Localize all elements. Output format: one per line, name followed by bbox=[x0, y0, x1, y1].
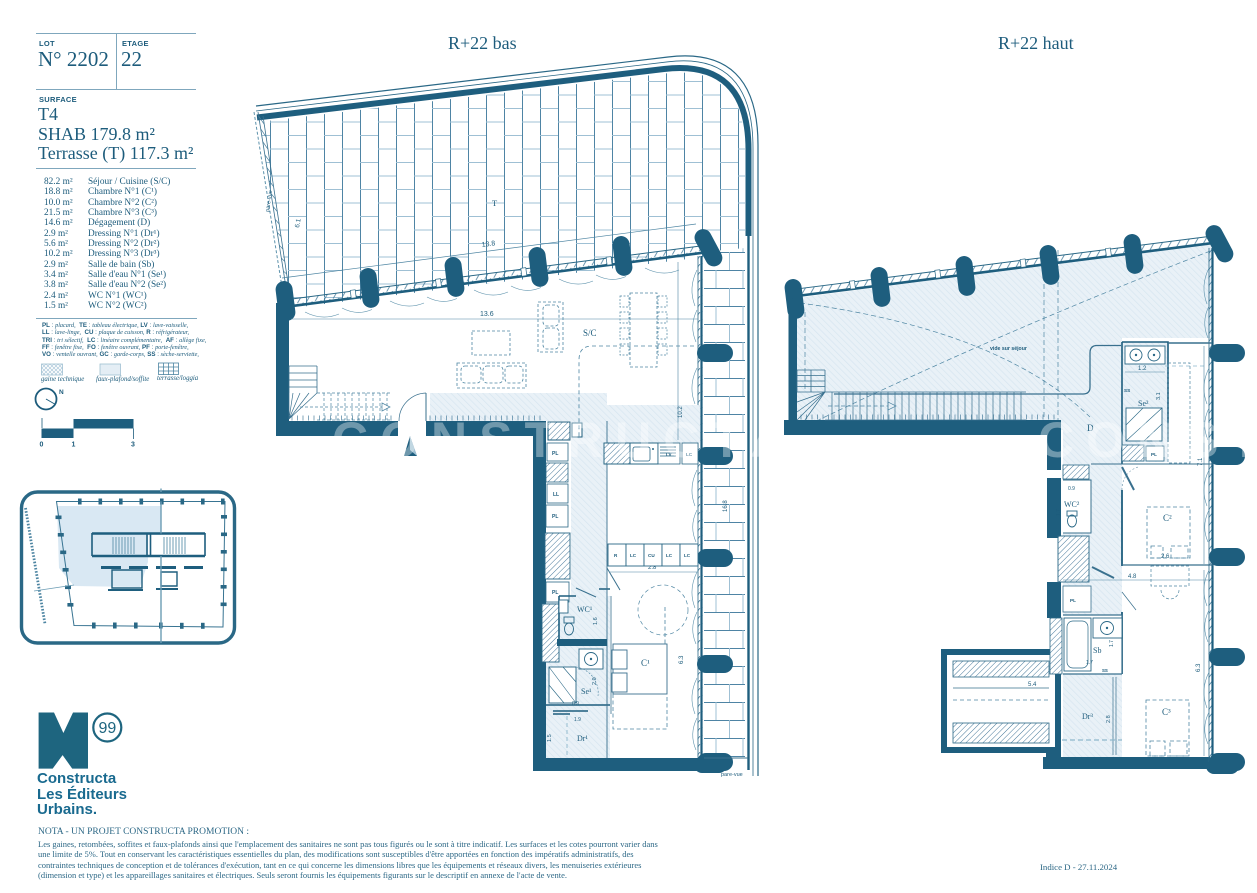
svg-text:LC: LC bbox=[630, 553, 637, 558]
svg-text:C²: C² bbox=[1163, 513, 1172, 523]
svg-text:13.6: 13.6 bbox=[480, 311, 494, 318]
svg-text:0: 0 bbox=[40, 442, 44, 449]
svg-text:T: T bbox=[492, 198, 498, 208]
svg-text:3.1: 3.1 bbox=[1156, 392, 1162, 400]
svg-text:1.6: 1.6 bbox=[593, 617, 599, 625]
svg-text:1.9: 1.9 bbox=[574, 717, 581, 723]
svg-text:1.7: 1.7 bbox=[1056, 509, 1062, 516]
svg-text:WC¹: WC¹ bbox=[577, 605, 593, 614]
svg-text:SS: SS bbox=[1102, 668, 1108, 673]
svg-text:1.7: 1.7 bbox=[1086, 660, 1093, 666]
svg-text:LC: LC bbox=[684, 553, 691, 558]
svg-text:0.9: 0.9 bbox=[572, 701, 579, 707]
svg-text:SS: SS bbox=[1124, 388, 1130, 393]
svg-text:WC²: WC² bbox=[1064, 500, 1080, 509]
svg-text:pare-vue: pare-vue bbox=[721, 772, 743, 778]
svg-text:N: N bbox=[59, 389, 64, 396]
svg-text:pare-vue: pare-vue bbox=[265, 190, 274, 212]
svg-text:1: 1 bbox=[72, 442, 76, 449]
svg-text:PL: PL bbox=[552, 514, 558, 520]
svg-text:5.4: 5.4 bbox=[1028, 682, 1037, 688]
svg-text:2.8: 2.8 bbox=[1106, 715, 1112, 723]
svg-text:Se²: Se² bbox=[1138, 399, 1149, 408]
svg-text:LC: LC bbox=[666, 553, 673, 558]
svg-text:CU: CU bbox=[648, 553, 655, 558]
svg-text:Se¹: Se¹ bbox=[581, 687, 592, 696]
svg-text:1.5: 1.5 bbox=[547, 734, 553, 742]
svg-text:4.8: 4.8 bbox=[1128, 574, 1137, 580]
svg-text:LL: LL bbox=[553, 492, 559, 498]
svg-text:PL: PL bbox=[552, 590, 558, 596]
svg-text:Dr³: Dr³ bbox=[1082, 712, 1093, 721]
svg-text:2.0: 2.0 bbox=[592, 677, 598, 685]
svg-text:1.2: 1.2 bbox=[1138, 366, 1147, 372]
svg-text:S/C: S/C bbox=[583, 328, 597, 338]
svg-text:Dr¹: Dr¹ bbox=[577, 734, 588, 743]
svg-text:C³: C³ bbox=[1162, 707, 1171, 717]
svg-text:PL: PL bbox=[1070, 598, 1076, 603]
svg-text:Sb: Sb bbox=[1093, 646, 1101, 655]
svg-text:6.3: 6.3 bbox=[1196, 663, 1202, 672]
svg-text:16.8: 16.8 bbox=[723, 500, 729, 512]
svg-text:vide sur séjour: vide sur séjour bbox=[990, 346, 1027, 352]
svg-text:C¹: C¹ bbox=[641, 658, 650, 668]
svg-text:6.3: 6.3 bbox=[679, 655, 685, 664]
svg-text:0.9: 0.9 bbox=[1068, 486, 1075, 492]
svg-text:3: 3 bbox=[131, 442, 135, 449]
svg-text:2.6: 2.6 bbox=[1161, 554, 1170, 560]
svg-text:1.7: 1.7 bbox=[1109, 640, 1115, 647]
svg-text:99: 99 bbox=[99, 720, 117, 737]
